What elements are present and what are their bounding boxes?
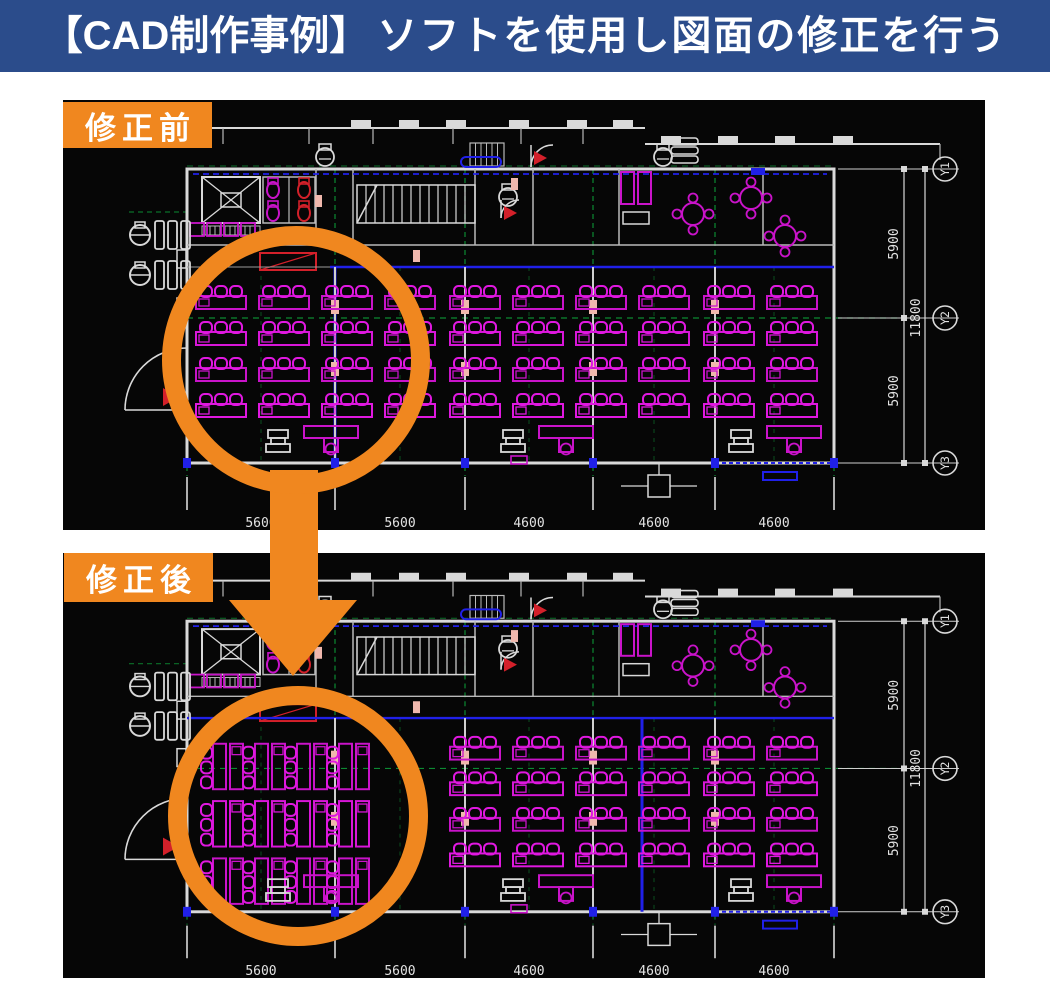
svg-text:Y1: Y1 [938, 162, 952, 176]
svg-text:Y1: Y1 [938, 614, 952, 628]
svg-text:5900: 5900 [887, 680, 902, 711]
svg-text:5600: 5600 [384, 516, 415, 530]
before-label: 修正前 [63, 102, 212, 148]
svg-text:5600: 5600 [245, 964, 276, 978]
svg-text:Y3: Y3 [938, 456, 952, 470]
svg-text:Y2: Y2 [938, 311, 952, 325]
title-banner: 【CAD制作事例】 ソフトを使用し図面の修正を行う [0, 0, 1050, 72]
highlight-circle-after [168, 686, 428, 946]
down-arrow-icon [220, 470, 370, 680]
svg-text:4600: 4600 [638, 516, 669, 530]
after-label: 修正後 [64, 553, 213, 602]
svg-text:11800: 11800 [909, 298, 924, 337]
svg-text:4600: 4600 [513, 964, 544, 978]
title-main-text: ソフトを使用し図面の修正を行う [377, 0, 1007, 72]
svg-text:4600: 4600 [758, 516, 789, 530]
svg-text:Y3: Y3 [938, 905, 952, 919]
svg-text:4600: 4600 [758, 964, 789, 978]
svg-text:4600: 4600 [638, 964, 669, 978]
svg-text:5900: 5900 [887, 375, 902, 406]
svg-text:11800: 11800 [909, 749, 924, 788]
highlight-circle-before [162, 226, 430, 494]
title-bracket-text: 【CAD制作事例】 [43, 0, 370, 72]
svg-text:Y2: Y2 [938, 762, 952, 776]
svg-text:5600: 5600 [384, 964, 415, 978]
svg-text:5900: 5900 [887, 228, 902, 259]
svg-text:4600: 4600 [513, 516, 544, 530]
svg-text:5900: 5900 [887, 825, 902, 856]
